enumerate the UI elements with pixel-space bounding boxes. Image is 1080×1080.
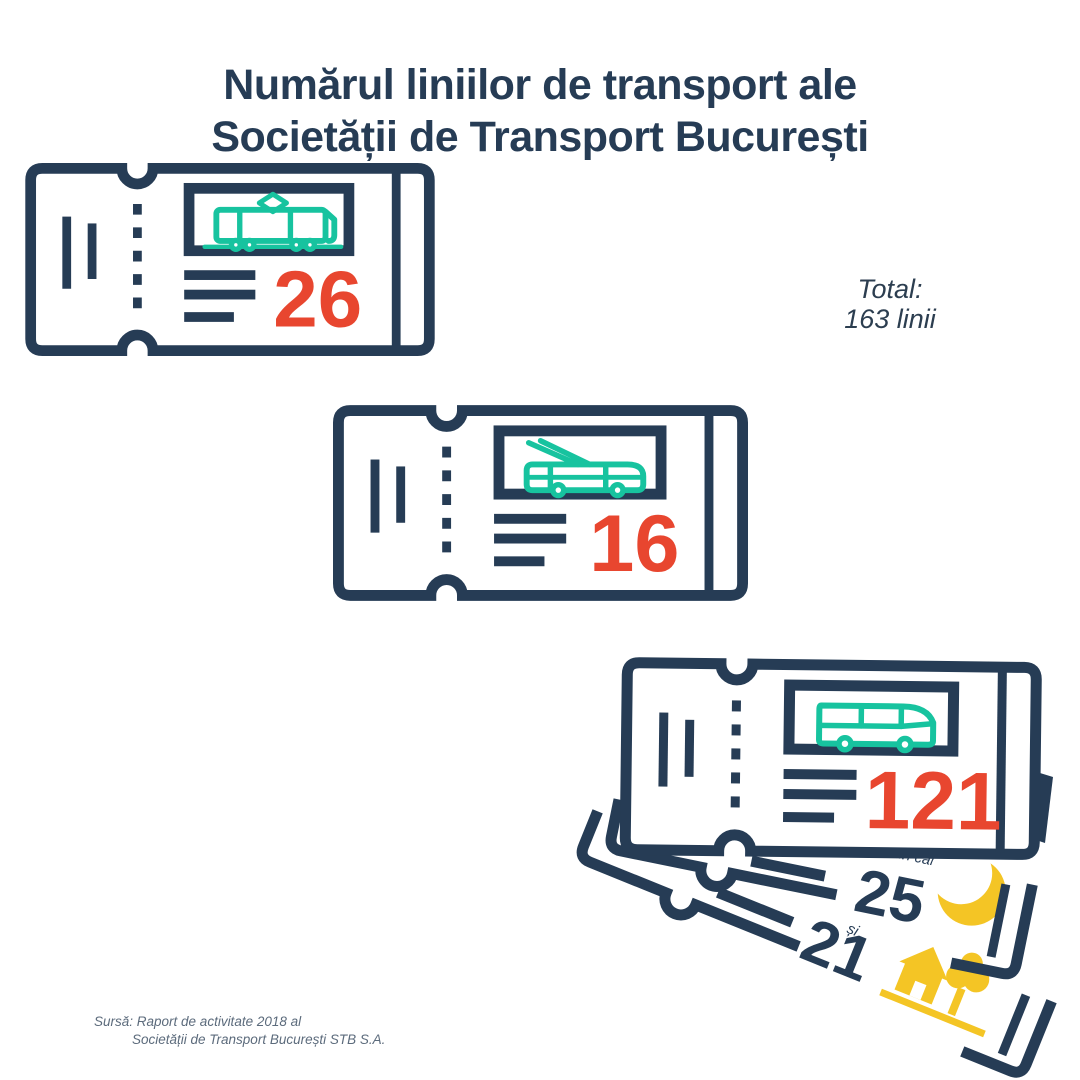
- total-label: Total:: [857, 274, 922, 304]
- ticket-stack: și 21 din care 25: [560, 640, 1080, 1080]
- title-line-1: Numărul liniilor de transport ale: [223, 61, 856, 109]
- source-line-2: Societății de Transport București STB S.…: [132, 1032, 385, 1047]
- source-note: Sursă: Raport de activitate 2018 al Soci…: [94, 1013, 385, 1048]
- tram-line-count: 26: [273, 255, 362, 344]
- sub-ticket-bar: [751, 861, 824, 876]
- bus-line-count: 121: [864, 755, 1002, 848]
- sub-ticket-end-stripe: [1002, 995, 1026, 1054]
- source-line-1: Sursă: Raport de activitate 2018 al: [94, 1014, 301, 1029]
- ticket-bus: 121: [625, 663, 1036, 855]
- trolleybus-line-count: 16: [589, 499, 679, 589]
- night-line-count: 25: [849, 856, 930, 937]
- infographic-canvas: Numărul liniilor de transport ale Societ…: [0, 0, 1080, 1080]
- page-title: Numărul liniilor de transport ale Societ…: [0, 59, 1080, 164]
- total-annotation: Total: 163 linii: [790, 274, 990, 334]
- ticket-tram: 26: [25, 163, 435, 356]
- ticket-trolleybus: 16: [333, 405, 748, 601]
- title-line-2: Societății de Transport București: [211, 113, 868, 161]
- total-value: 163 linii: [844, 304, 936, 334]
